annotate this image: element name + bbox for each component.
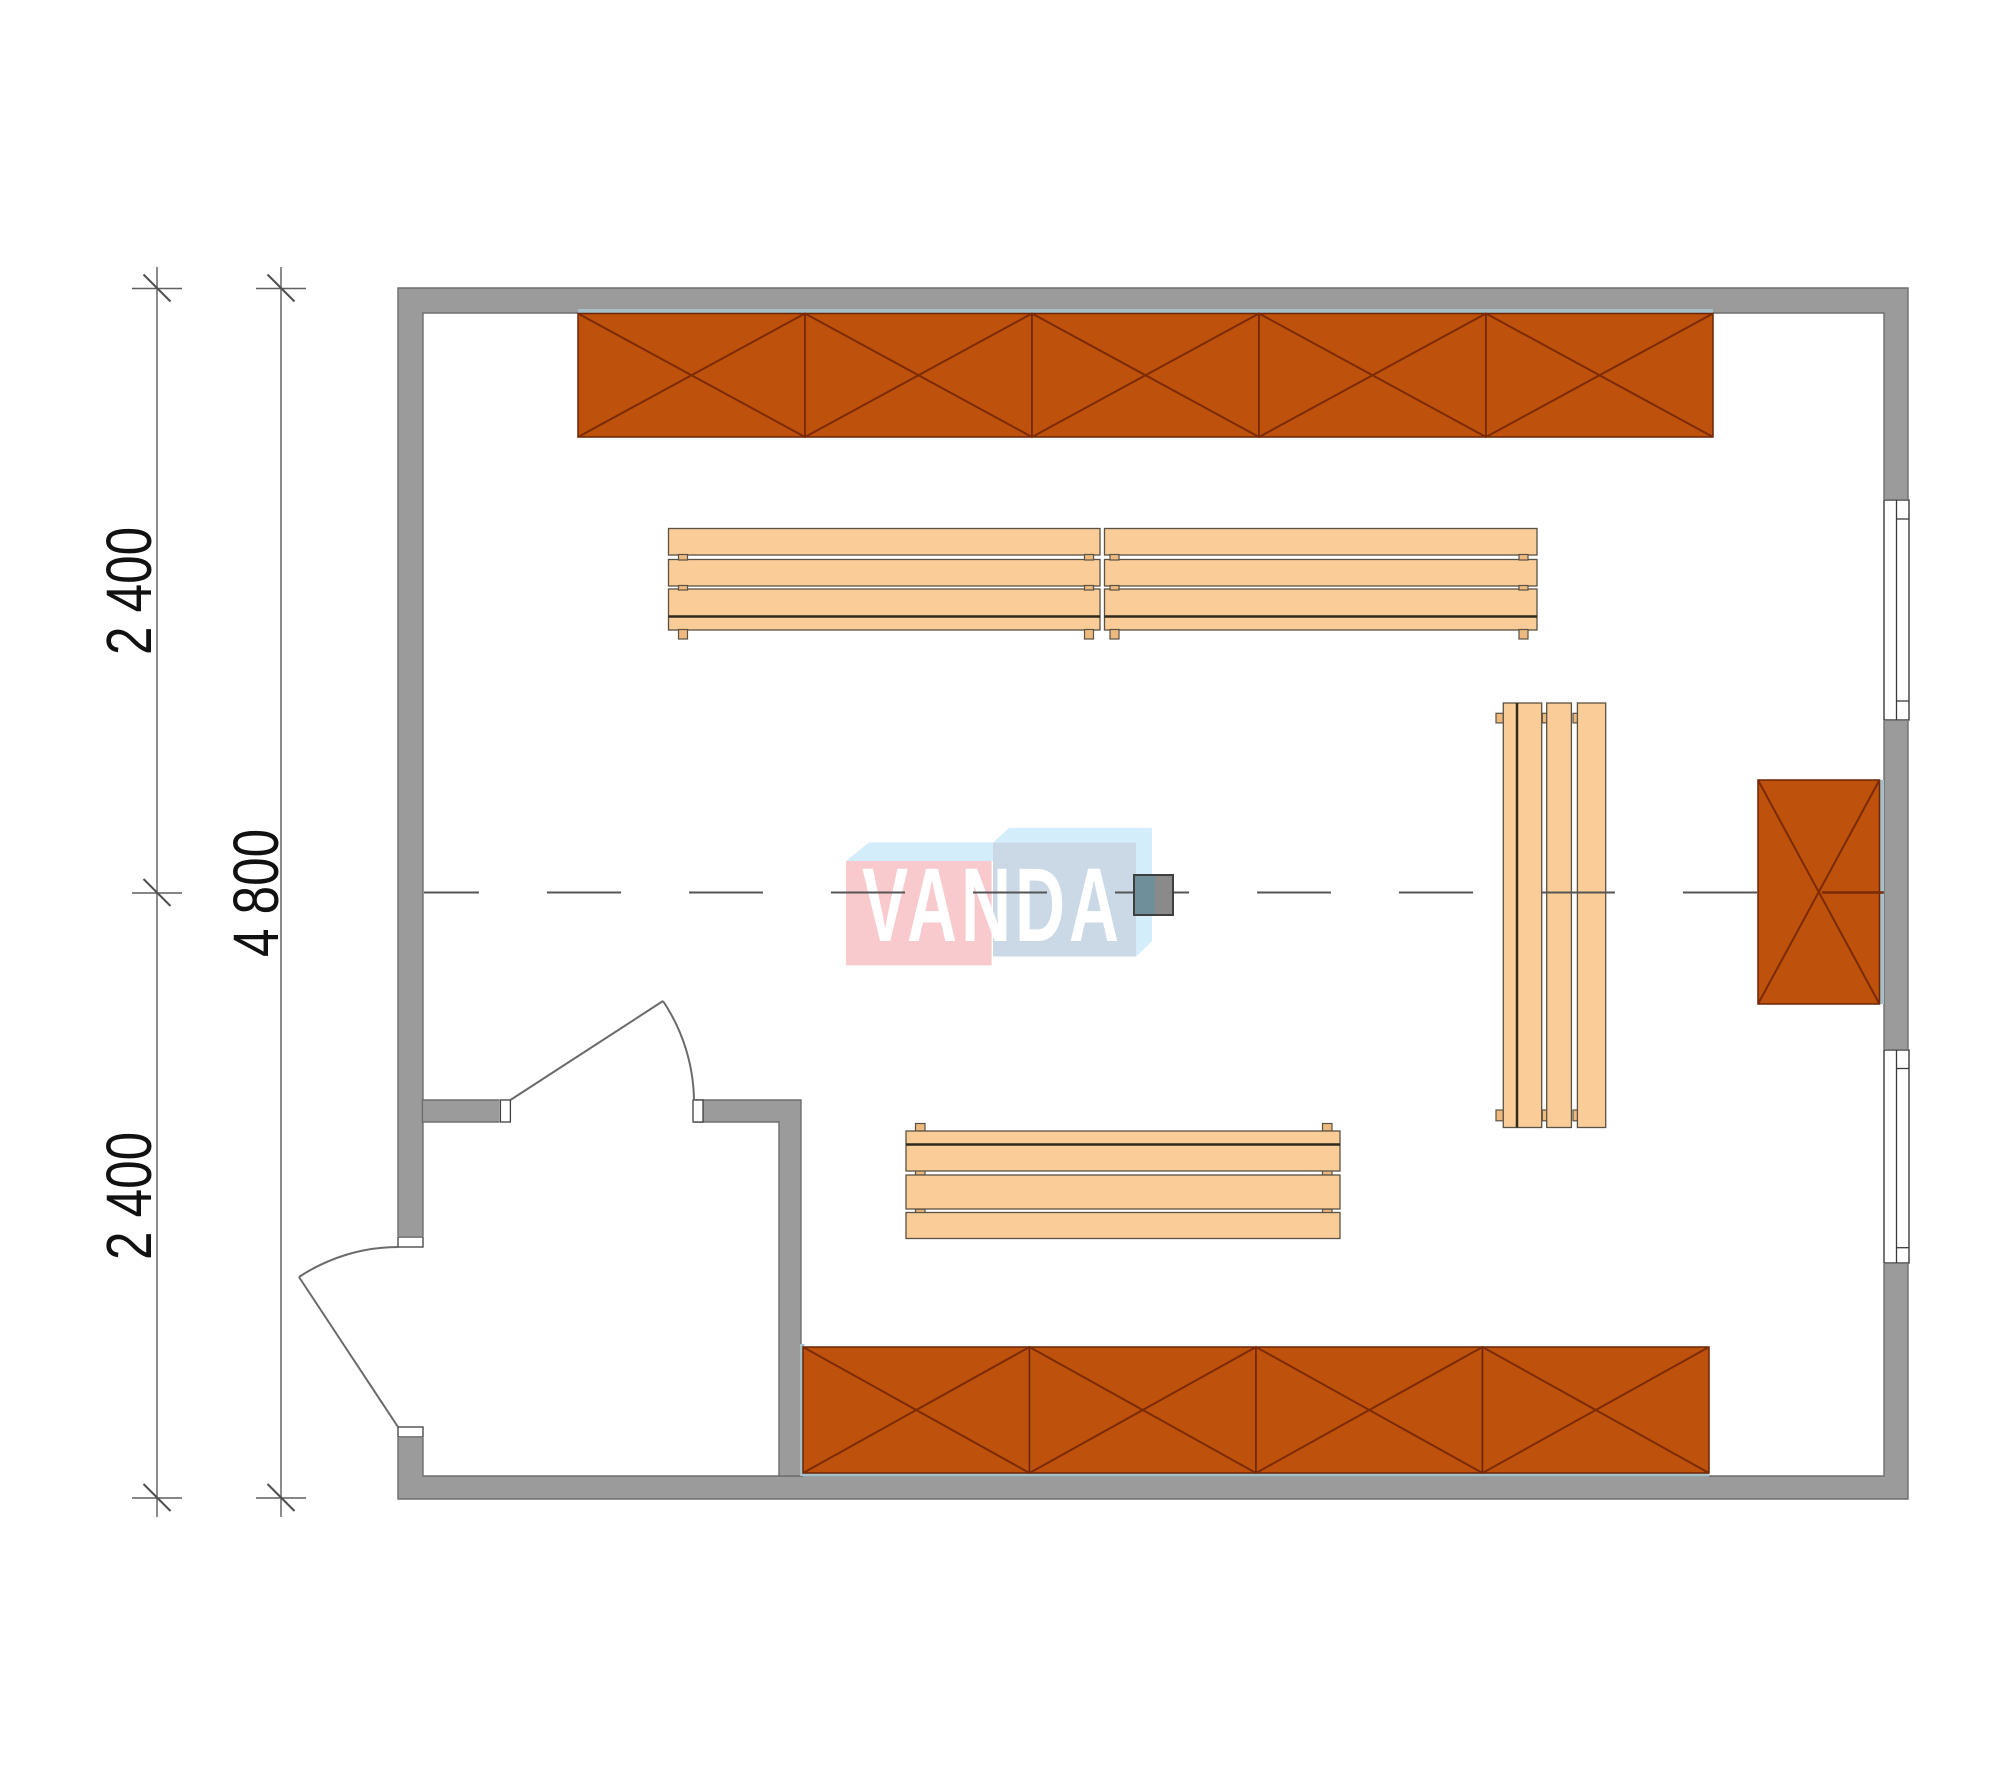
- svg-text:4 800: 4 800: [222, 829, 293, 957]
- svg-text:2 400: 2 400: [95, 1132, 166, 1260]
- svg-text:2 400: 2 400: [95, 527, 166, 655]
- svg-text:VANDA: VANDA: [862, 845, 1123, 963]
